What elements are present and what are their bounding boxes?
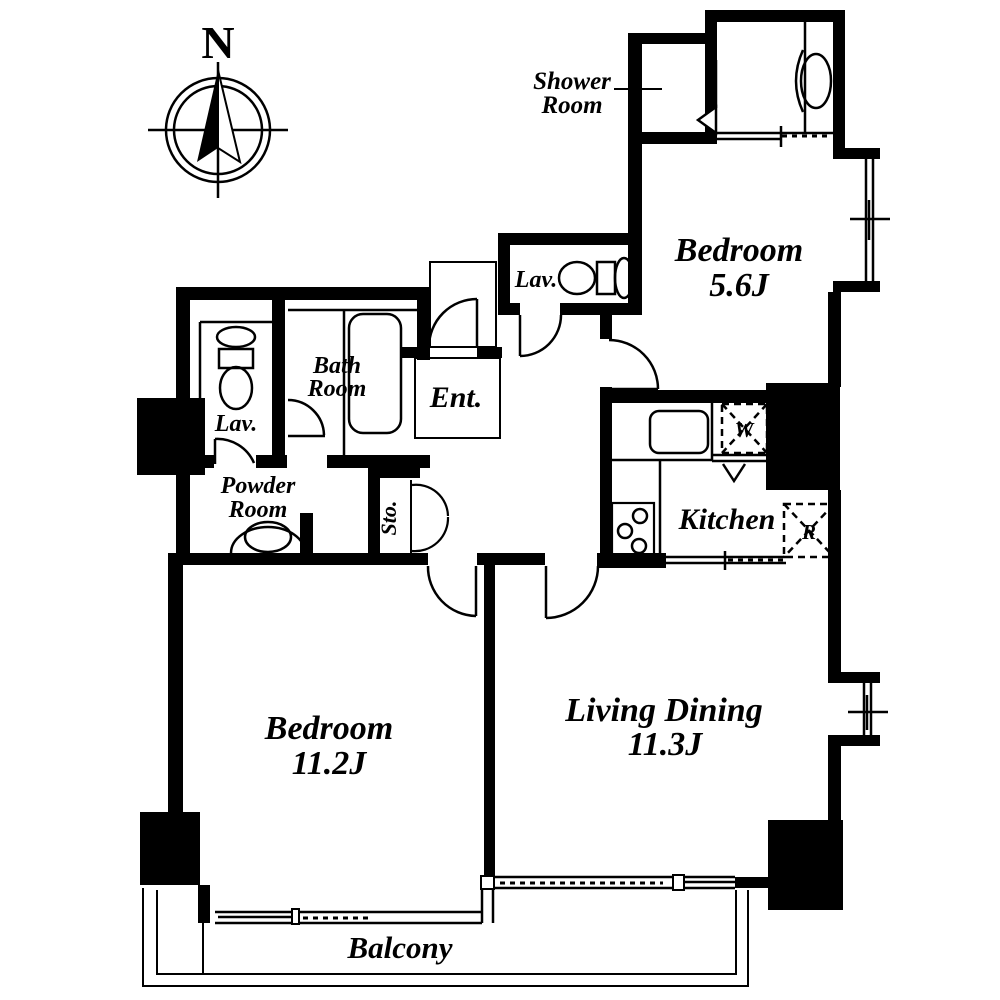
wall bbox=[477, 347, 502, 358]
storage-label: Sto. bbox=[376, 501, 401, 536]
bedroom-large-door-arc bbox=[428, 566, 476, 616]
wall bbox=[632, 33, 717, 44]
compass bbox=[148, 62, 288, 198]
wall bbox=[612, 390, 772, 403]
wall bbox=[272, 300, 285, 468]
wall bbox=[168, 553, 428, 565]
powder-room-label-line2: Room bbox=[228, 497, 288, 523]
bath-room-label-line2: Room bbox=[307, 376, 367, 402]
walls bbox=[137, 10, 880, 923]
wall bbox=[176, 287, 430, 300]
bedroom-large-size: 11.2J bbox=[292, 745, 368, 782]
wall bbox=[828, 672, 880, 683]
wall-pillar bbox=[766, 383, 840, 490]
wall-pillar bbox=[768, 820, 843, 910]
compass-north-label: N bbox=[201, 17, 234, 68]
floor-plan-page: N bbox=[0, 0, 1000, 1000]
storage-door-arc bbox=[412, 517, 448, 551]
toilet-bowl bbox=[559, 262, 595, 294]
vanity-counter bbox=[231, 527, 305, 553]
entrance-porch bbox=[430, 262, 496, 347]
wall bbox=[498, 233, 510, 315]
wall bbox=[735, 877, 775, 888]
washer-label: W bbox=[735, 418, 755, 442]
wall bbox=[828, 292, 841, 387]
toilet-bowl bbox=[220, 367, 252, 409]
bedroom-large-label: Bedroom bbox=[264, 710, 393, 747]
wall bbox=[477, 553, 545, 565]
wall bbox=[828, 735, 880, 746]
living-dining-label: Living Dining bbox=[564, 692, 762, 729]
compass-needle-light bbox=[218, 70, 240, 162]
shower-room-label-line2: Room bbox=[540, 92, 602, 119]
wall bbox=[484, 560, 495, 877]
bedroom-small-label: Bedroom bbox=[674, 232, 803, 269]
washer-door-mark bbox=[723, 464, 745, 481]
wall bbox=[256, 455, 287, 468]
toilet-tank bbox=[597, 262, 615, 294]
wall bbox=[705, 10, 845, 22]
bath-door-arc bbox=[288, 400, 324, 435]
wall bbox=[300, 513, 313, 565]
wall bbox=[628, 33, 642, 315]
sliding-window-lock bbox=[673, 875, 684, 890]
wall bbox=[498, 233, 638, 245]
powder-room-label-line1: Powder bbox=[220, 473, 296, 499]
window-step-post bbox=[481, 876, 494, 889]
floor-plan: N bbox=[0, 0, 1000, 1000]
lav-door-arc bbox=[520, 315, 561, 356]
wall bbox=[368, 468, 420, 478]
living-door-arc bbox=[546, 566, 598, 618]
sliding-window-lock bbox=[292, 909, 299, 924]
wall bbox=[327, 455, 430, 468]
refrigerator-label: R bbox=[801, 520, 816, 544]
wall-pillar bbox=[140, 812, 200, 885]
wall bbox=[560, 303, 638, 315]
living-dining-size: 11.3J bbox=[628, 726, 704, 763]
wall bbox=[833, 10, 845, 158]
stove-burner bbox=[632, 539, 646, 553]
wall bbox=[828, 746, 841, 826]
lav-upper-label: Lav. bbox=[514, 267, 557, 293]
wall bbox=[190, 455, 214, 468]
wall bbox=[600, 387, 612, 565]
balcony-label: Balcony bbox=[346, 930, 452, 965]
toilet-tank bbox=[219, 349, 253, 368]
bedroom-small-door-arc bbox=[609, 340, 658, 389]
wall bbox=[833, 281, 880, 292]
wall bbox=[498, 303, 520, 315]
lav-left-door-arc bbox=[215, 439, 254, 463]
storage-door-arc bbox=[412, 485, 448, 516]
toilet-tank-lid bbox=[217, 327, 255, 347]
stove-burner bbox=[618, 524, 632, 538]
compass-needle-dark bbox=[197, 70, 218, 162]
entrance-door-arc bbox=[429, 299, 477, 347]
wall bbox=[632, 132, 717, 144]
stove-burner bbox=[633, 509, 647, 523]
bedroom-small-size: 5.6J bbox=[709, 267, 770, 304]
shower-room-label-line1: Shower bbox=[533, 68, 611, 95]
wall bbox=[600, 315, 612, 339]
kitchen-sink bbox=[650, 411, 708, 453]
wall bbox=[400, 347, 430, 358]
lav-left-label: Lav. bbox=[214, 411, 257, 437]
entrance-label: Ent. bbox=[429, 381, 483, 414]
wall bbox=[168, 553, 183, 812]
kitchen-label: Kitchen bbox=[678, 503, 776, 536]
wall bbox=[833, 148, 880, 159]
